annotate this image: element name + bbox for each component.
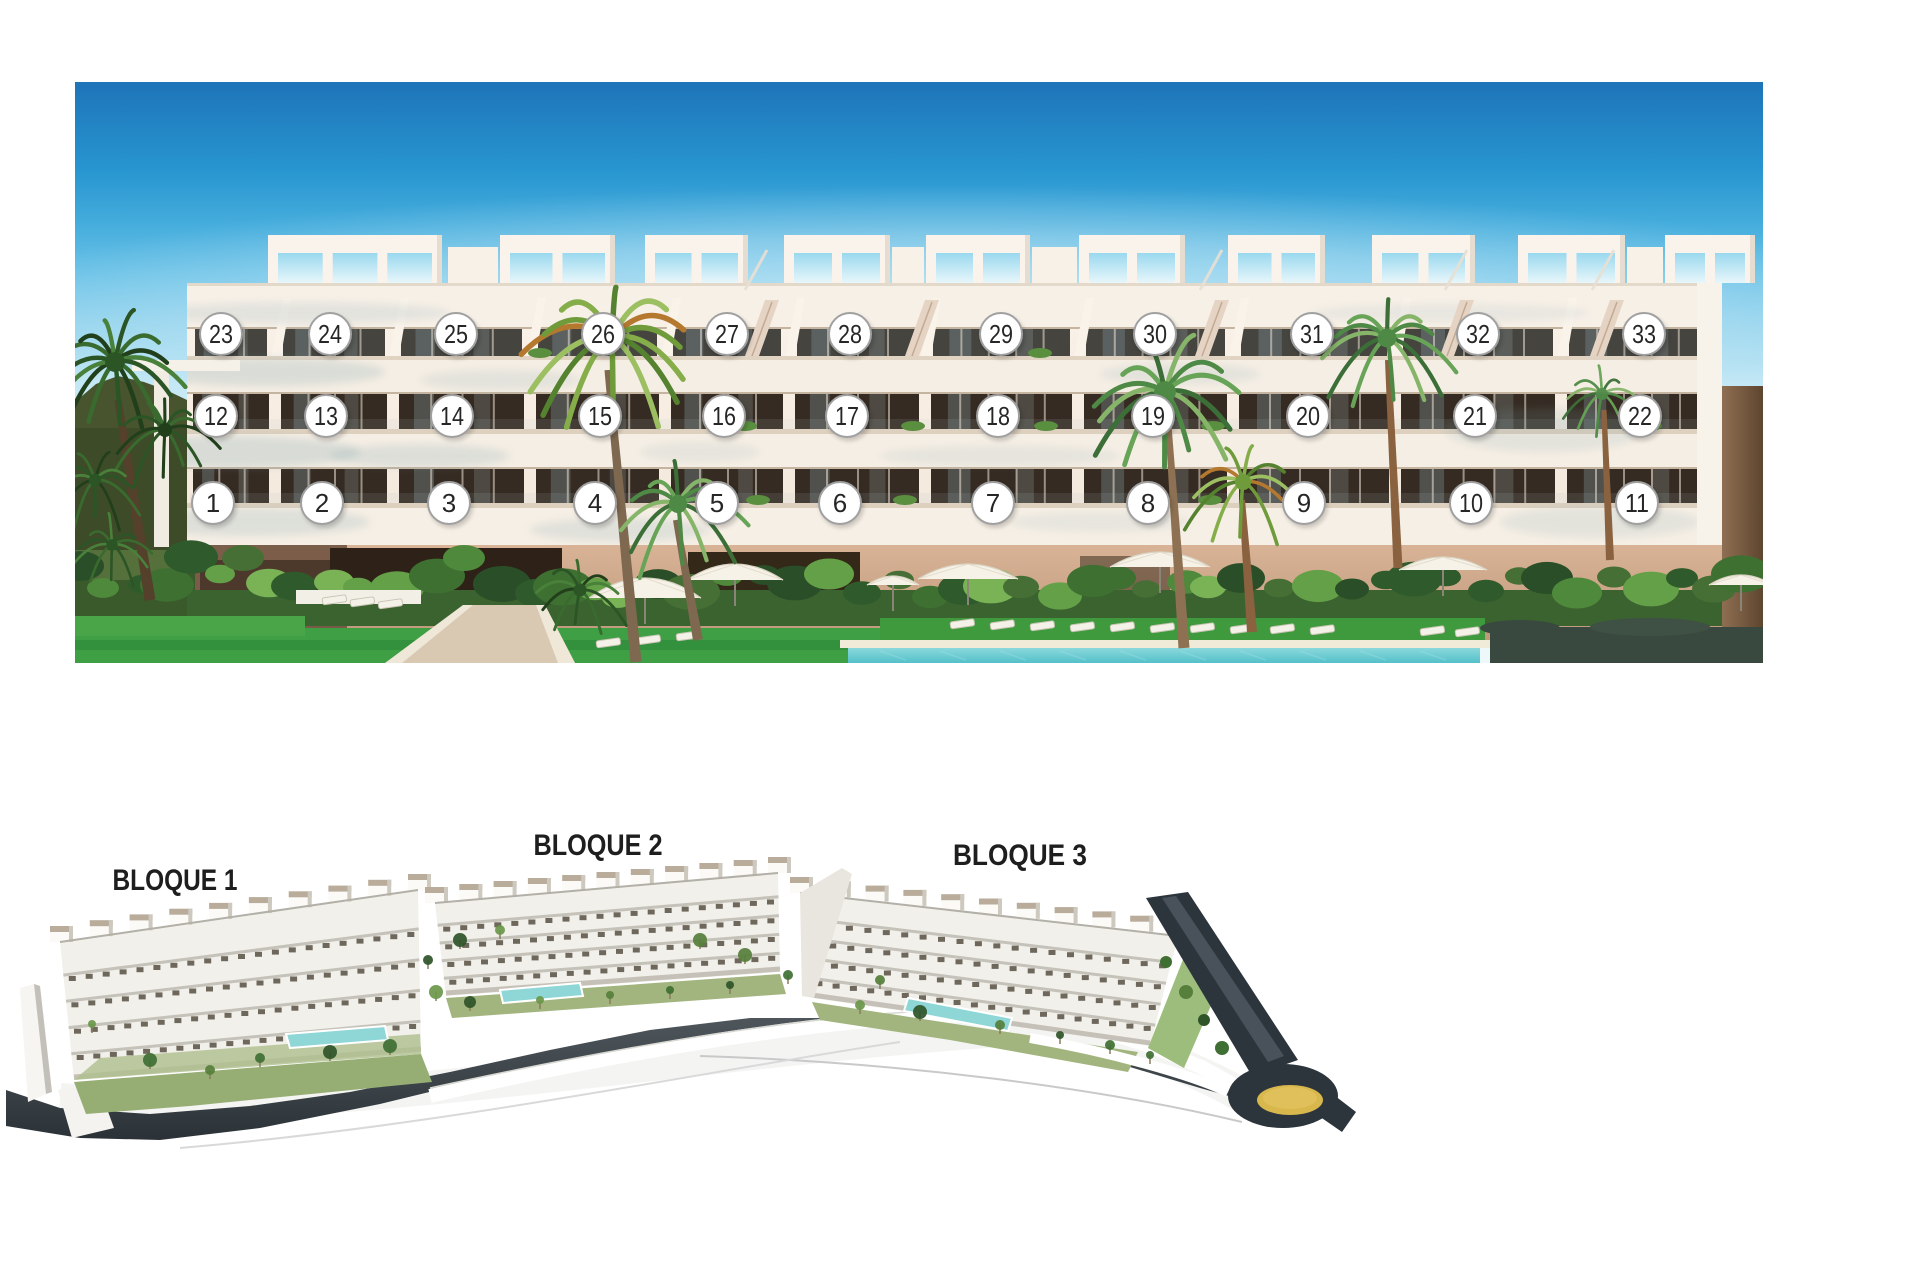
- svg-text:11: 11: [1625, 488, 1649, 518]
- svg-text:9: 9: [1297, 488, 1311, 518]
- svg-text:BLOQUE 1: BLOQUE 1: [113, 864, 238, 897]
- svg-text:20: 20: [1296, 401, 1320, 431]
- svg-text:2: 2: [315, 488, 329, 518]
- svg-text:16: 16: [712, 401, 736, 431]
- svg-text:1: 1: [206, 488, 220, 518]
- svg-text:22: 22: [1628, 401, 1652, 431]
- svg-text:15: 15: [588, 401, 612, 431]
- svg-text:14: 14: [440, 401, 464, 431]
- svg-text:5: 5: [710, 488, 724, 518]
- svg-text:26: 26: [591, 319, 615, 349]
- svg-text:3: 3: [442, 488, 456, 518]
- svg-text:18: 18: [986, 401, 1010, 431]
- svg-text:6: 6: [833, 488, 847, 518]
- svg-text:8: 8: [1141, 488, 1155, 518]
- svg-text:17: 17: [835, 401, 859, 431]
- svg-text:BLOQUE 2: BLOQUE 2: [534, 829, 663, 862]
- svg-text:29: 29: [989, 319, 1013, 349]
- svg-text:32: 32: [1466, 319, 1490, 349]
- svg-text:23: 23: [209, 319, 233, 349]
- svg-text:7: 7: [986, 488, 1000, 518]
- svg-text:10: 10: [1459, 488, 1483, 518]
- svg-text:13: 13: [314, 401, 338, 431]
- svg-text:19: 19: [1141, 401, 1165, 431]
- svg-text:27: 27: [715, 319, 739, 349]
- svg-text:30: 30: [1143, 319, 1167, 349]
- svg-text:12: 12: [204, 401, 228, 431]
- svg-text:21: 21: [1463, 401, 1487, 431]
- svg-text:31: 31: [1300, 319, 1324, 349]
- svg-text:BLOQUE 3: BLOQUE 3: [953, 839, 1087, 872]
- svg-text:25: 25: [444, 319, 468, 349]
- svg-text:4: 4: [588, 488, 602, 518]
- svg-text:28: 28: [838, 319, 862, 349]
- svg-text:33: 33: [1632, 319, 1656, 349]
- svg-text:24: 24: [318, 319, 342, 349]
